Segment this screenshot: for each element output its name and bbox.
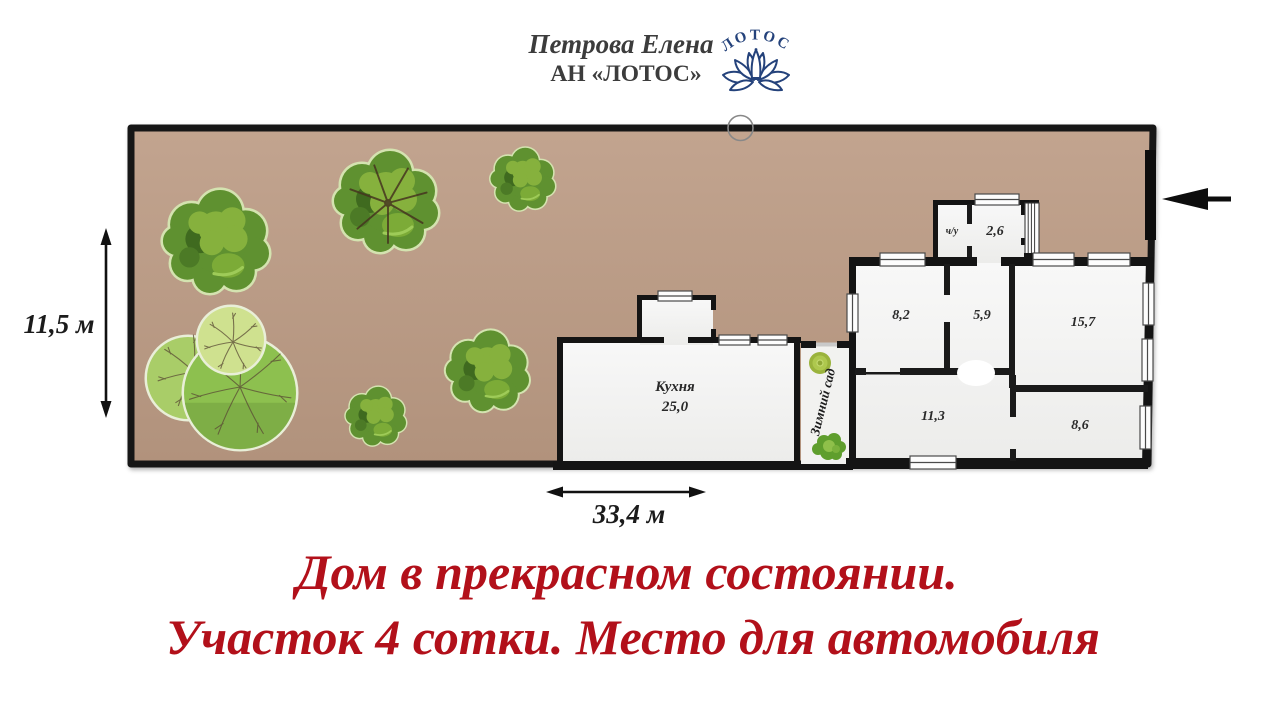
svg-text:11,3: 11,3 — [921, 409, 945, 424]
svg-text:25,0: 25,0 — [661, 399, 689, 415]
svg-text:Участок 4 сотки. Место для авт: Участок 4 сотки. Место для автомобиля — [166, 609, 1100, 665]
svg-text:8,2: 8,2 — [892, 308, 910, 323]
svg-text:2,6: 2,6 — [985, 224, 1004, 239]
svg-text:АН «ЛОТОС»: АН «ЛОТОС» — [550, 61, 701, 87]
svg-text:5,9: 5,9 — [973, 308, 991, 323]
svg-text:11,5 м: 11,5 м — [23, 309, 94, 339]
svg-text:8,6: 8,6 — [1071, 418, 1089, 433]
svg-text:33,4 м: 33,4 м — [592, 499, 666, 529]
svg-text:Кухня: Кухня — [654, 379, 695, 395]
svg-text:15,7: 15,7 — [1071, 315, 1097, 330]
svg-text:ч/у: ч/у — [946, 226, 959, 237]
svg-text:Петрова Елена: Петрова Елена — [527, 29, 713, 59]
svg-text:Дом в прекрасном состоянии.: Дом в прекрасном состоянии. — [292, 544, 957, 600]
